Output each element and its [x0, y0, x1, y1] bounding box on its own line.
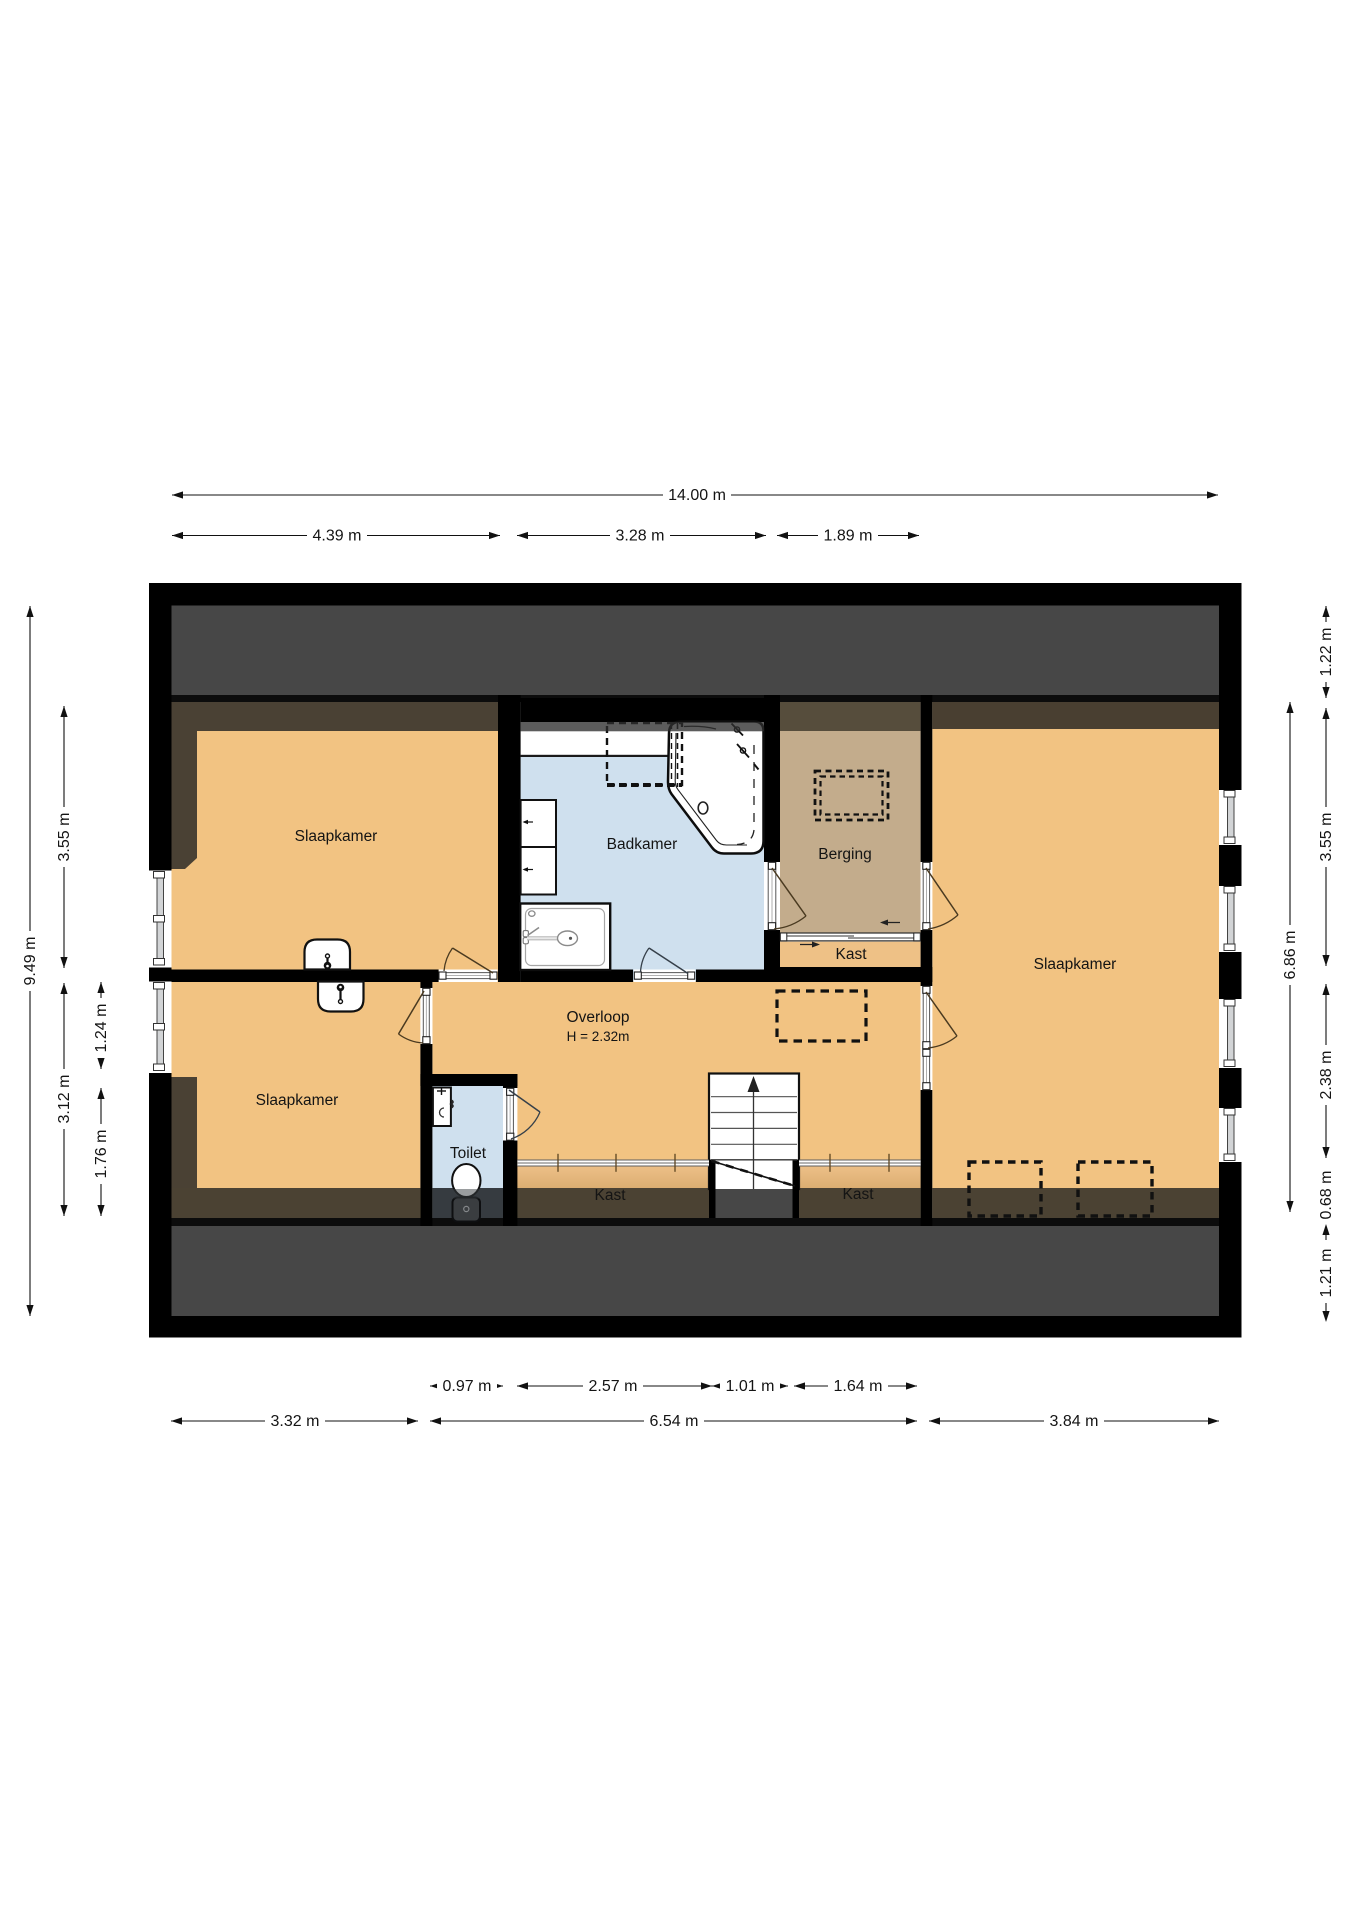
- svg-text:Kast: Kast: [594, 1187, 626, 1204]
- svg-text:Badkamer: Badkamer: [607, 836, 678, 853]
- svg-text:1.24 m: 1.24 m: [93, 1004, 110, 1053]
- svg-text:Toilet: Toilet: [450, 1145, 487, 1162]
- svg-text:Berging: Berging: [818, 846, 871, 863]
- svg-text:1.64 m: 1.64 m: [834, 1378, 883, 1395]
- svg-text:1.22 m: 1.22 m: [1318, 628, 1335, 677]
- svg-text:3.84 m: 3.84 m: [1050, 1413, 1099, 1430]
- svg-text:Kast: Kast: [835, 946, 867, 963]
- svg-text:14.00 m: 14.00 m: [668, 487, 726, 504]
- svg-text:1.21 m: 1.21 m: [1318, 1249, 1335, 1298]
- svg-text:Slaapkamer: Slaapkamer: [256, 1092, 339, 1109]
- svg-text:1.01 m: 1.01 m: [726, 1378, 775, 1395]
- svg-text:9.49 m: 9.49 m: [22, 937, 39, 986]
- svg-text:3.55 m: 3.55 m: [56, 813, 73, 862]
- svg-text:2.57 m: 2.57 m: [589, 1378, 638, 1395]
- svg-text:6.86 m: 6.86 m: [1282, 931, 1299, 980]
- svg-text:3.55 m: 3.55 m: [1318, 813, 1335, 862]
- svg-text:2.38 m: 2.38 m: [1318, 1051, 1335, 1100]
- svg-text:Slaapkamer: Slaapkamer: [295, 828, 378, 845]
- svg-text:0.97 m: 0.97 m: [443, 1378, 492, 1395]
- svg-text:3.12 m: 3.12 m: [56, 1075, 73, 1124]
- svg-text:1.89 m: 1.89 m: [824, 528, 873, 545]
- svg-text:6.54 m: 6.54 m: [650, 1413, 699, 1430]
- svg-text:1.76 m: 1.76 m: [93, 1130, 110, 1179]
- svg-text:H = 2.32m: H = 2.32m: [567, 1029, 630, 1044]
- svg-text:4.39 m: 4.39 m: [313, 528, 362, 545]
- svg-text:0.68 m: 0.68 m: [1318, 1171, 1335, 1220]
- svg-text:3.32 m: 3.32 m: [271, 1413, 320, 1430]
- svg-text:Kast: Kast: [842, 1186, 874, 1203]
- svg-text:Slaapkamer: Slaapkamer: [1034, 956, 1117, 973]
- svg-text:Overloop: Overloop: [567, 1009, 630, 1026]
- svg-text:3.28 m: 3.28 m: [616, 528, 665, 545]
